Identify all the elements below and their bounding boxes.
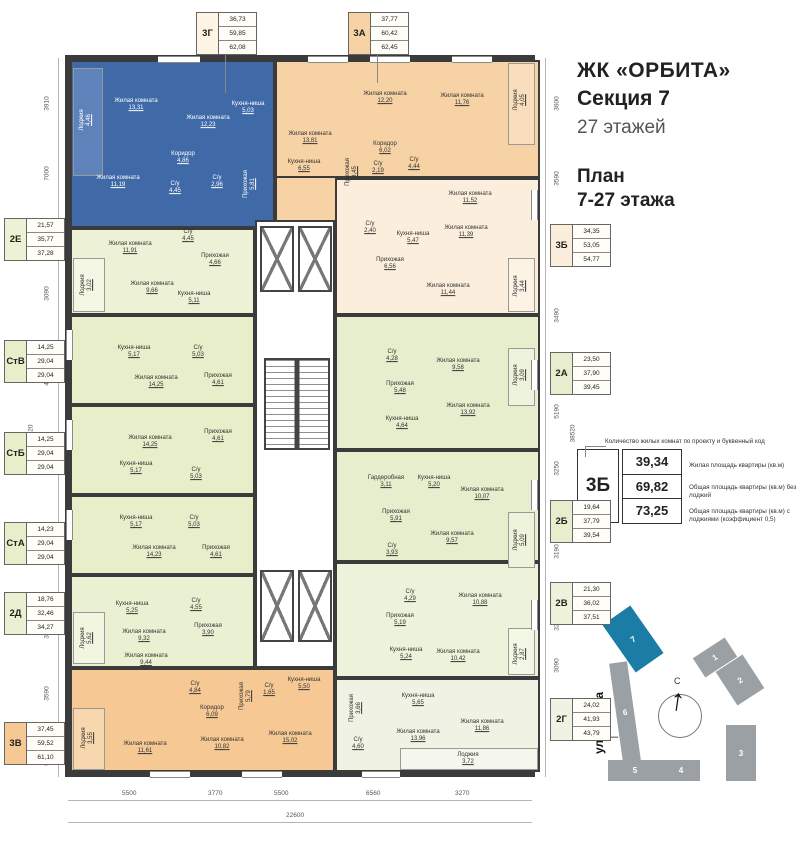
- room-label: Кухня-ниша5,17: [120, 515, 153, 529]
- dimension-label: 3090: [554, 658, 561, 672]
- room-label: Гардеробная3,11: [368, 475, 404, 489]
- apartment-code-box-2e: 2Е 21,5735,7737,28: [4, 218, 65, 261]
- window: [242, 771, 282, 778]
- room-label: Жилая комната9,44: [124, 653, 167, 667]
- apartment-code-box-stb: СтБ 14,2529,0429,04: [4, 432, 65, 475]
- room-label: Кухня-ниша5,17: [118, 345, 151, 359]
- room-label: Жилая комната11,19: [96, 175, 139, 189]
- dimension-label: 3590: [554, 171, 561, 185]
- room-label: Жилая комната11,44: [426, 283, 469, 297]
- legend-desc: Жилая площадь квартиры (кв.м): [689, 462, 797, 470]
- legend-value: 39,34: [622, 449, 682, 475]
- elevator-shaft: [260, 570, 294, 642]
- window: [452, 56, 492, 63]
- room-label: С/у4,45: [182, 229, 194, 243]
- room-label: Жилая комната12,20: [363, 91, 406, 105]
- dim-line-bottom-total: [68, 822, 532, 823]
- room-label: Жилая комната15,02: [268, 731, 311, 745]
- room-label: С/у1,65: [263, 683, 275, 697]
- room-label: С/у4,28: [386, 349, 398, 363]
- section-title: Секция 7: [577, 86, 731, 112]
- apartment-code-box-2d: 2Д 18,7632,4634,27: [4, 592, 65, 635]
- legend-callout-line: [585, 446, 606, 457]
- window: [308, 56, 348, 63]
- room-label: Кухня-ниша6,55: [288, 159, 321, 173]
- room-label: Кухня-ниша4,64: [386, 416, 419, 430]
- floors-subtitle: 27 этажей: [577, 116, 731, 140]
- room-label: Прихожая3,90: [194, 623, 222, 637]
- dim-line-right: [545, 58, 546, 777]
- room-label: Прихожая5,19: [386, 613, 414, 627]
- apartment-stv: [70, 315, 255, 405]
- leader-line: [225, 53, 226, 93]
- room-label: Кухня-ниша5,47: [397, 231, 430, 245]
- room-label: Лоджия5,62: [80, 627, 94, 648]
- room-label: Жилая комната11,39: [444, 225, 487, 239]
- apartment-code-box-3b: 3Б 34,3553,0554,77: [550, 224, 611, 267]
- window: [370, 56, 410, 63]
- room-label: Жилая комната13,92: [446, 403, 489, 417]
- stairwell: [264, 358, 330, 450]
- window: [158, 56, 200, 63]
- dimension-label: 6560: [366, 790, 380, 797]
- apartment-code-box-sta: СтА 14,2329,0429,04: [4, 522, 65, 565]
- room-label: Прихожая5,91: [382, 509, 410, 523]
- apartment-stb: [70, 405, 255, 495]
- room-label: Жилая комната14,25: [134, 375, 177, 389]
- room-label: Прихожая5,79: [239, 682, 253, 710]
- apartment-code-box-2g: 2Г 24,0241,9343,79: [550, 698, 611, 741]
- room-label: Прихожая4,66: [201, 253, 229, 267]
- room-label: Прихожая4,61: [204, 429, 232, 443]
- room-label: Прихожая5,81: [243, 170, 257, 198]
- room-label: Жилая комната10,82: [200, 737, 243, 751]
- room-label: Жилая комната9,66: [130, 281, 173, 295]
- apartment-sta: [70, 495, 255, 575]
- site-section-4: 4: [662, 760, 700, 781]
- room-label: Жилая комната13,96: [396, 729, 439, 743]
- apartment-code-box-2a: 2А 23,5037,9039,45: [550, 352, 611, 395]
- room-label: Жилая комната14,25: [128, 435, 171, 449]
- dimension-label: 3590: [44, 686, 51, 700]
- room-label: Жилая комната11,61: [123, 741, 166, 755]
- room-label: С/у5,03: [190, 467, 202, 481]
- dimension-label: 5190: [554, 404, 561, 418]
- room-label: Жилая комната9,58: [436, 358, 479, 372]
- room-label: Кухня-ниша5,03: [232, 101, 265, 115]
- site-plan: 7 6 5 4 1 2 3 С ↑ ← ул. Титова: [588, 598, 800, 823]
- window: [66, 510, 73, 540]
- room-label: Лоджия4,05: [513, 89, 527, 110]
- room-label: Коридор4,86: [171, 151, 195, 165]
- room-label: Жилая комната13,81: [288, 131, 331, 145]
- project-title: ЖК «ОРБИТА»: [577, 58, 731, 84]
- window: [66, 330, 73, 360]
- room-label: Кухня-ниша5,17: [120, 461, 153, 475]
- apartment-code-box-2v: 2В 21,3036,0237,51: [550, 582, 611, 625]
- room-label: Жилая комната13,31: [114, 98, 157, 112]
- dimension-label: 3190: [554, 544, 561, 558]
- room-label: Лоджия3,02: [80, 274, 94, 295]
- room-label: С/у5,03: [192, 345, 204, 359]
- room-label: Прихожая4,61: [204, 373, 232, 387]
- floor-plan: Лоджия4,46 Жилая комната13,31 Жилая комн…: [65, 55, 535, 777]
- dimension-label: 3770: [208, 790, 222, 797]
- dimension-label: 3270: [455, 790, 469, 797]
- room-label: С/у4,45: [169, 181, 181, 195]
- room-label: Жилая комната11,76: [440, 93, 483, 107]
- room-label: Лоджия4,46: [79, 109, 93, 130]
- apartment-code-box-3v: 3В 37,4559,5261,10: [4, 722, 65, 765]
- room-label: С/у4,29: [404, 589, 416, 603]
- window: [531, 360, 538, 390]
- room-label: С/у3,93: [386, 543, 398, 557]
- legend-desc: Общая площадь квартиры (кв.м) без лоджий: [689, 484, 797, 500]
- room-label: Кухня-ниша5,24: [390, 647, 423, 661]
- leader-line: [377, 53, 378, 83]
- room-label: Лоджия5,09: [513, 529, 527, 550]
- room-label: Жилая комната11,86: [460, 719, 503, 733]
- room-label: Коридор6,09: [200, 705, 224, 719]
- dimension-label: 3600: [554, 96, 561, 110]
- apartment-code-box-stv: СтВ 14,2529,0429,04: [4, 340, 65, 383]
- apartment-code-box-2b: 2Б 19,6437,7939,54: [550, 500, 611, 543]
- legend-value: 69,82: [622, 474, 682, 500]
- room-label: Коридор6,02: [373, 141, 397, 155]
- legend-value: 73,25: [622, 498, 682, 524]
- plan-floors-label: 7-27 этажа: [577, 189, 731, 213]
- window: [66, 420, 73, 450]
- room-label: Прихожая4,61: [202, 545, 230, 559]
- dimension-label: 5500: [122, 790, 136, 797]
- room-label: Кухня-ниша5,20: [418, 475, 451, 489]
- room-label: Жилая комната10,07: [460, 487, 503, 501]
- room-label: С/у5,03: [188, 515, 200, 529]
- room-label: Прихожая5,48: [386, 381, 414, 395]
- floorplan-sheet: { "title":{"project":"ЖК «ОРБИТА»","sect…: [0, 0, 800, 856]
- dimension-label: 3250: [554, 461, 561, 475]
- dimension-label: 5500: [274, 790, 288, 797]
- elevator-shaft: [298, 226, 332, 292]
- room-label: Жилая комната9,57: [430, 531, 473, 545]
- room-label: Кухня-ниша5,11: [178, 291, 211, 305]
- room-label: Лоджия3,09: [513, 364, 527, 385]
- dimension-label: 3490: [554, 308, 561, 322]
- room-label: Лоджия3,55: [81, 727, 95, 748]
- dim-line-bottom: [68, 800, 532, 801]
- room-label: С/у4,84: [189, 681, 201, 695]
- room-label: Прихожая3,66: [349, 694, 363, 722]
- title-block: ЖК «ОРБИТА» Секция 7 27 этажей План 7-27…: [577, 58, 731, 213]
- room-label: Жилая комната11,52: [448, 191, 491, 205]
- room-label: Жилая комната14,23: [132, 545, 175, 559]
- dimension-label: 7000: [44, 166, 51, 180]
- dimension-label: 22600: [286, 812, 304, 819]
- room-label: Жилая комната10,42: [436, 649, 479, 663]
- window: [531, 190, 538, 220]
- room-label: С/у2,40: [364, 221, 376, 235]
- dimension-label: 38520: [570, 424, 577, 442]
- room-label: Лоджия3,72: [457, 752, 478, 766]
- room-label: Кухня-ниша5,65: [402, 693, 435, 707]
- dim-line-left: [58, 58, 59, 777]
- elevator-shaft: [260, 226, 294, 292]
- window: [531, 480, 538, 510]
- plan-label: План: [577, 165, 731, 189]
- room-label: Лоджия3,44: [513, 275, 527, 296]
- room-label: Жилая комната10,88: [458, 593, 501, 607]
- room-label: Лоджия2,87: [513, 643, 527, 664]
- room-label: Кухня-ниша5,50: [288, 677, 321, 691]
- window: [531, 600, 538, 630]
- apartment-code-box-3a: 3А 37,7760,4262,45: [348, 12, 409, 55]
- dimension-label: 3910: [44, 96, 51, 110]
- apartment-code-box-3g: 3Г 36,7359,8562,08: [196, 12, 257, 55]
- legend-callout-text: Количество жилых комнат по проекту и бук…: [605, 438, 797, 445]
- legend-desc: Общая площадь квартиры (кв.м) с лоджиями…: [689, 508, 797, 524]
- room-label: С/у4,55: [190, 598, 202, 612]
- room-label: С/у4,60: [352, 737, 364, 751]
- room-label: Кухня-ниша5,25: [116, 601, 149, 615]
- dimension-label: 3090: [44, 286, 51, 300]
- window: [362, 771, 400, 778]
- window: [150, 771, 190, 778]
- elevator-shaft: [298, 570, 332, 642]
- site-section-6: 6: [609, 661, 641, 763]
- site-section-3: 3: [726, 725, 756, 781]
- room-label: Жилая комната11,91: [108, 241, 151, 255]
- room-label: Жилая комната9,32: [122, 629, 165, 643]
- room-label: Прихожая3,45: [345, 158, 359, 186]
- site-section-5: 5: [608, 760, 662, 781]
- room-label: Прихожая6,56: [376, 257, 404, 271]
- room-label: С/у2,19: [372, 161, 384, 175]
- room-label: Жилая комната12,23: [186, 115, 229, 129]
- room-label: С/у2,96: [211, 175, 223, 189]
- room-label: С/у4,44: [408, 157, 420, 171]
